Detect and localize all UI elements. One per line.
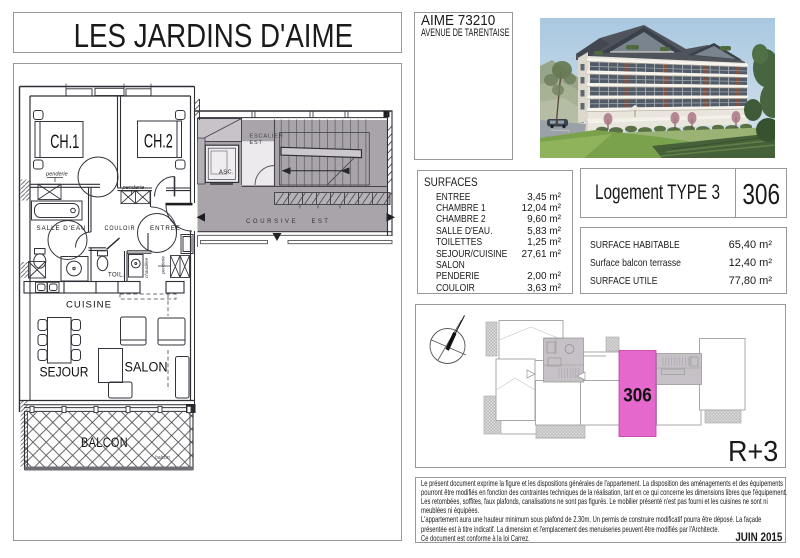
svg-text:EST: EST [312,219,331,225]
svg-text:ENTREE: ENTREE [150,225,181,232]
svg-text:penderie: penderie [161,256,166,275]
svg-text:COURSIVE: COURSIVE [246,219,298,225]
svg-text:TOIL.: TOIL. [108,273,125,279]
svg-text:COULOIR: COULOIR [105,225,136,232]
svg-text:CUISINE: CUISINE [66,299,112,310]
svg-text:BALCON: BALCON [81,435,128,450]
svg-text:EST: EST [250,140,263,146]
svg-text:chaudière: chaudière [144,257,149,278]
svg-text:SEJOUR: SEJOUR [40,365,89,380]
svg-text:ASC.: ASC. [219,170,234,176]
svg-text:penderie: penderie [122,185,145,191]
svg-text:balcon: balcon [155,455,170,461]
svg-text:ESCALIER: ESCALIER [250,134,284,140]
svg-text:306: 306 [623,386,652,407]
svg-text:SALLE D'EAU: SALLE D'EAU [37,225,87,232]
svg-text:CH.1: CH.1 [50,132,79,153]
svg-text:CH.2: CH.2 [144,132,173,153]
svg-text:SALON: SALON [125,360,168,375]
svg-text:penderie: penderie [45,172,68,178]
